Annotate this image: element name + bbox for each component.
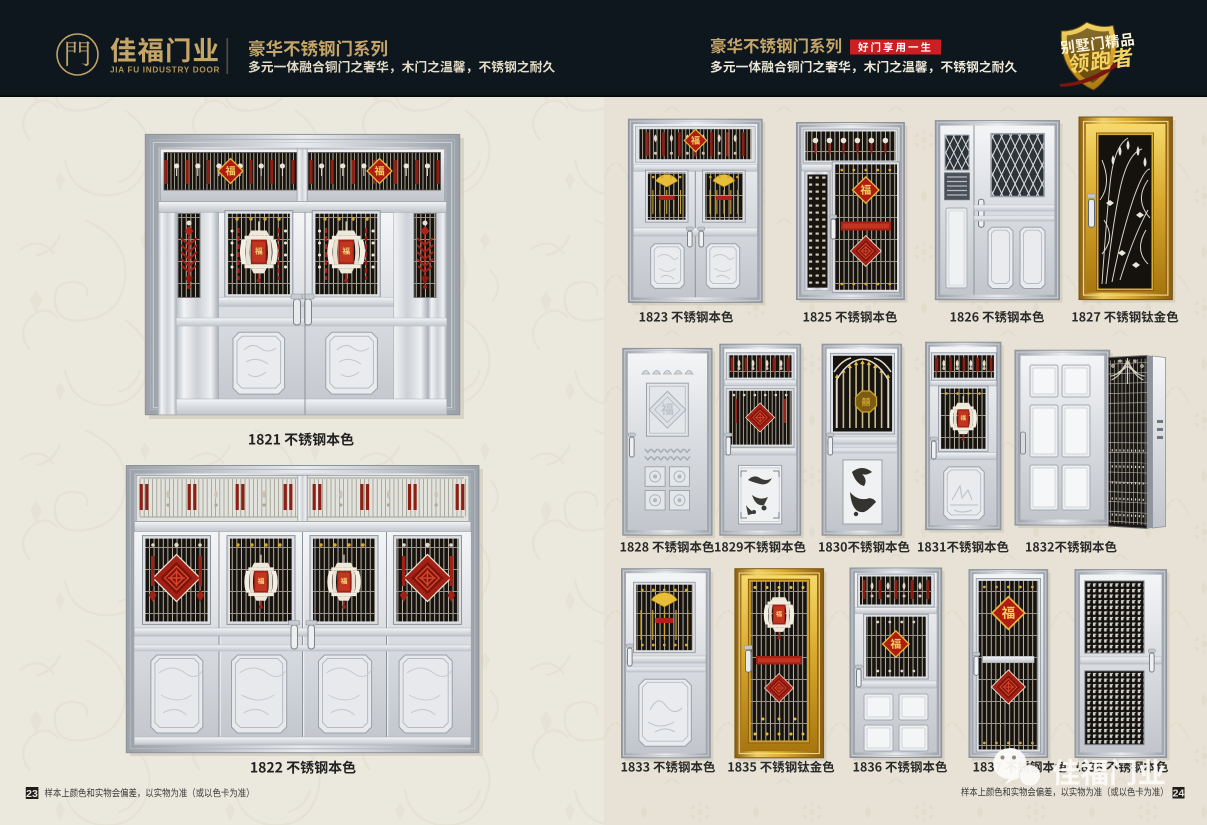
svg-text:24: 24 [1173,788,1185,800]
svg-text:23: 23 [26,788,38,800]
svg-text:JIA FU INDUSTRY DOOR: JIA FU INDUSTRY DOOR [110,66,220,75]
